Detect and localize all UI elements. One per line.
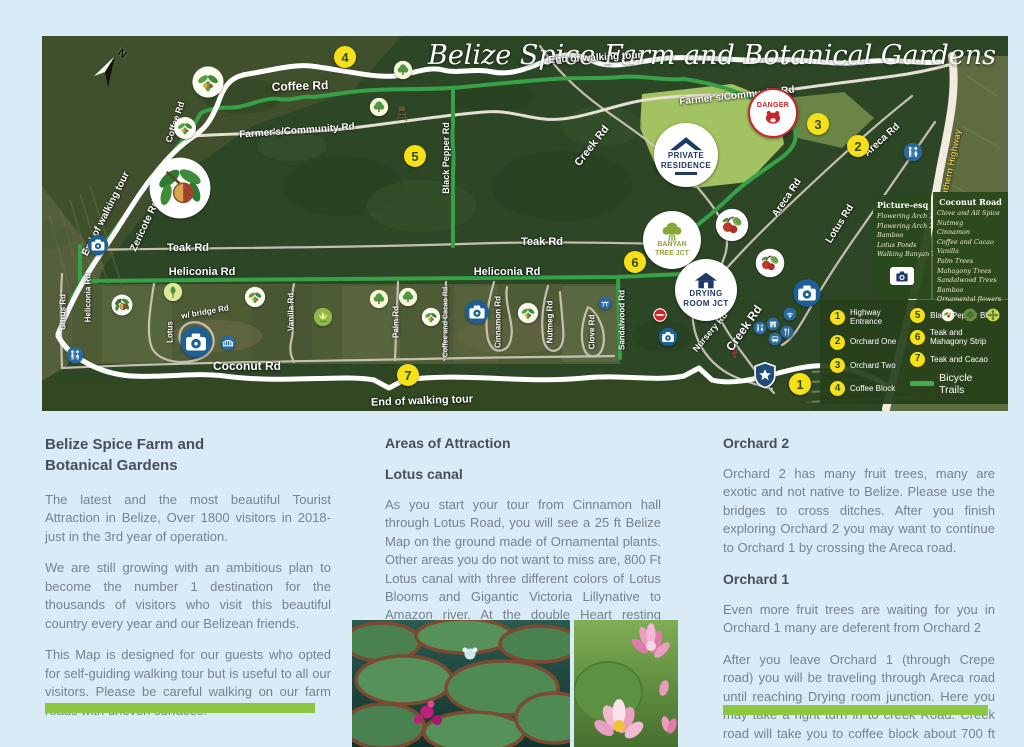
private-residence-line2: RESIDENCE [661,161,711,171]
banyan-tree-jct-badge: BANYAN TREE JCT [643,211,701,269]
hiker-icon [729,348,741,360]
tree-icon [369,97,389,117]
legend-label: Orchard Two [850,361,896,370]
restroom-icon [903,142,923,162]
intro-paragraph-2: We are still growing with an ambitious p… [45,559,331,633]
legend-item: 2Orchard One [830,335,906,350]
food-icon [780,325,794,339]
fruit-icon [715,208,749,242]
fruit-icon [755,248,785,278]
camera-icon [792,278,822,308]
info-box-item: Flowering Arch 1 [877,212,927,222]
orchards-column: Orchard 2 Orchard 2 has many fruit trees… [723,434,995,747]
road-label: Coconut Rd [213,359,281,373]
info-box-item: Nutmeg [937,219,1004,229]
road-label: Palm Rd [392,306,401,338]
coconut-road-box: Coconut Road Clove and All SpiceNutmegCi… [933,192,1008,299]
bear-icon [763,109,783,124]
info-box-item: Coffee and Cacao [937,238,1004,248]
roof-icon [668,135,704,151]
plant-icon [517,302,539,324]
legend-number-badge: 5 [910,308,925,323]
info-box-item: Lotus Ponds [877,241,927,251]
attractions-heading: Areas of Attraction [385,434,661,454]
info-box-item: Vanilla [937,247,1004,257]
legend-label: Orchard One [850,337,896,346]
picture-esq-items: Flowering Arch 1Flowering Arch 2BambooLo… [877,212,927,260]
heading-line2: Botanical Gardens [45,457,178,474]
road-label: Nutmeg Rd [546,301,555,344]
lotus-icon [313,307,333,327]
banyan-line1: BANYAN [657,241,686,249]
restroom-icon [753,321,767,335]
road-label: Coffee Rd [271,78,328,94]
legend-number-badge: 3 [830,358,845,373]
road-label: Sandalwood Rd [618,290,627,350]
tree-icon [398,287,418,307]
flower-icon [986,308,1000,322]
info-box-item: Walking Banyan Tree [877,250,927,260]
camera-icon [87,234,109,256]
legend-item: 7Teak and Cacao [910,352,1000,367]
drying-line1: DRYING [689,289,722,299]
orchard1-heading: Orchard 1 [723,570,995,590]
road-label: Citrus Rd [59,294,68,330]
camera-icon [464,299,490,325]
info-box-item: Palm Trees [937,257,1004,267]
info-box-item: Sandalwood Trees [937,276,1004,286]
star-shield-icon [751,361,779,389]
legend-label: Bicycle Trails [939,372,1000,396]
legend-number-badge: 7 [910,352,925,367]
heading-line1: Belize Spice Farm and [45,436,204,453]
map-marker-1: 1 [789,373,811,395]
compass-north-icon: N [88,50,128,96]
picture-esq-title: Picture-esq [877,200,927,210]
info-box-item: Flowering Arch 2 [877,222,927,232]
coconut-road-title: Coconut Road [937,197,1004,207]
private-residence-badge: PRIVATE RESIDENCE [654,123,718,187]
plant-icon [191,65,225,99]
lotus-canal-subheading: Lotus canal [385,465,661,485]
legend-item: Bicycle Trails [910,372,1000,396]
info-box-item: Bamboo [937,286,1004,296]
info-box-item: Ornamental flowers [937,295,1004,305]
drying-line2: ROOM JCT [683,299,728,309]
legend-item: 6Teak and Mahagony Strip [910,328,1000,346]
coconut-road-icons [937,308,1004,322]
road-label: Lotus [166,321,175,343]
road-label: Clove Rd [588,315,597,350]
danger-badge: DANGER [748,88,798,138]
green-divider-bar [723,705,988,715]
map-title: Belize Spice Farm and Botanical Gardens [428,40,996,71]
info-box-item: Cinnamon [937,228,1004,238]
legend-number-badge: 6 [910,330,925,345]
banyan-line2: TREE JCT [655,250,689,258]
lotus-flower-photo [574,620,678,747]
road-label: Heliconia Rd [474,266,541,278]
private-residence-line1: PRIVATE [668,151,704,161]
nutmeg-icon [148,156,212,220]
no-entry-icon [651,306,669,324]
road-label: Vanilla Rd [287,293,296,331]
map-marker-4: 4 [334,46,356,68]
tree-icon [369,289,389,309]
map-marker-5: 5 [404,145,426,167]
leaf-icon [163,282,183,302]
nutmeg-icon [111,294,133,316]
legend-label: Coffee Block [850,384,895,393]
coconut-road-items: Clove and All SpiceNutmegCinnamonCoffee … [937,209,1004,305]
map-marker-6: 6 [624,251,646,273]
danger-label: DANGER [757,102,789,109]
legend-number-badge: 4 [830,381,845,396]
plant-icon [173,116,197,140]
intro-paragraph-1: The latest and the most beautiful Touris… [45,491,331,546]
road-label: Heliconia Rd [169,266,236,278]
legend-item: 4Coffee Block [830,381,906,396]
camera-icon [179,325,213,359]
camera-icon [658,327,678,347]
legend-label: Teak and Mahagony Strip [930,328,1000,346]
green-divider-bar [45,703,315,713]
map-marker-7: 7 [397,364,419,386]
tree-icon [963,308,977,322]
legend-number-badge: 1 [830,310,845,325]
legend-item: 3Orchard Two [830,358,906,373]
brochure-heading: Belize Spice Farm andBotanical Gardens [45,434,331,476]
photo-strip [352,620,678,747]
picnic-icon [598,296,612,310]
orchard1-paragraph-1: Even more fruit trees are waiting for yo… [723,601,995,638]
picture-esq-box: Picture-esq Flowering Arch 1Flowering Ar… [873,195,931,299]
orchard2-paragraph: Orchard 2 has many fruit trees, many are… [723,465,995,557]
badge-underline [675,172,697,175]
restroom-icon [66,346,84,364]
road-label: Teak Rd [521,236,563,248]
orchard2-heading: Orchard 2 [723,434,995,454]
intro-column: Belize Spice Farm andBotanical Gardens T… [45,434,331,733]
road-label: Black Pepper Rd [441,122,451,194]
road-label: Heliconia Rd [84,274,93,322]
plant-icon [244,286,266,308]
road-label: Teak Rd [167,242,209,254]
legend-label: Highway Entrance [850,308,906,326]
map-marker-2: 2 [847,135,869,157]
map-marker-3: 3 [807,113,829,135]
legend-col-1: 1Highway Entrance2Orchard One3Orchard Tw… [830,308,906,396]
orchard1-paragraph-2: After you leave Orchard 1 (through Crepe… [723,651,995,747]
info-box-item: Clove and All Spice [937,209,1004,219]
legend-number-badge: 2 [830,335,845,350]
bridge-icon [220,335,236,351]
banyan-tree-icon [657,222,687,241]
info-box-item: Bamboo [877,231,927,241]
plant-icon [421,307,441,327]
farm-map: Belize Spice Farm and Botanical Gardens … [42,36,1008,411]
road-label: Coffee and Cacao Rd [443,287,450,357]
house-icon [692,271,720,289]
shop-icon [766,317,780,331]
tree-icon [393,60,413,80]
legend-label: Teak and Cacao [930,355,988,364]
brochure-page: Belize Spice Farm and Botanical Gardens … [0,0,1024,747]
camera-icon [890,267,914,285]
legend-item: 1Highway Entrance [830,308,906,326]
road-label: Cinnamon Rd [494,296,503,348]
wifi-icon [783,307,797,321]
info-box-item: Mahagony Trees [937,267,1004,277]
spice-icon [941,308,955,322]
victoria-lily-photo [352,620,570,747]
bus-icon [768,332,782,346]
watchtower-icon [393,104,411,122]
bicycle-trail-swatch [910,381,934,386]
drying-room-jct-badge: DRYING ROOM JCT [675,259,737,321]
